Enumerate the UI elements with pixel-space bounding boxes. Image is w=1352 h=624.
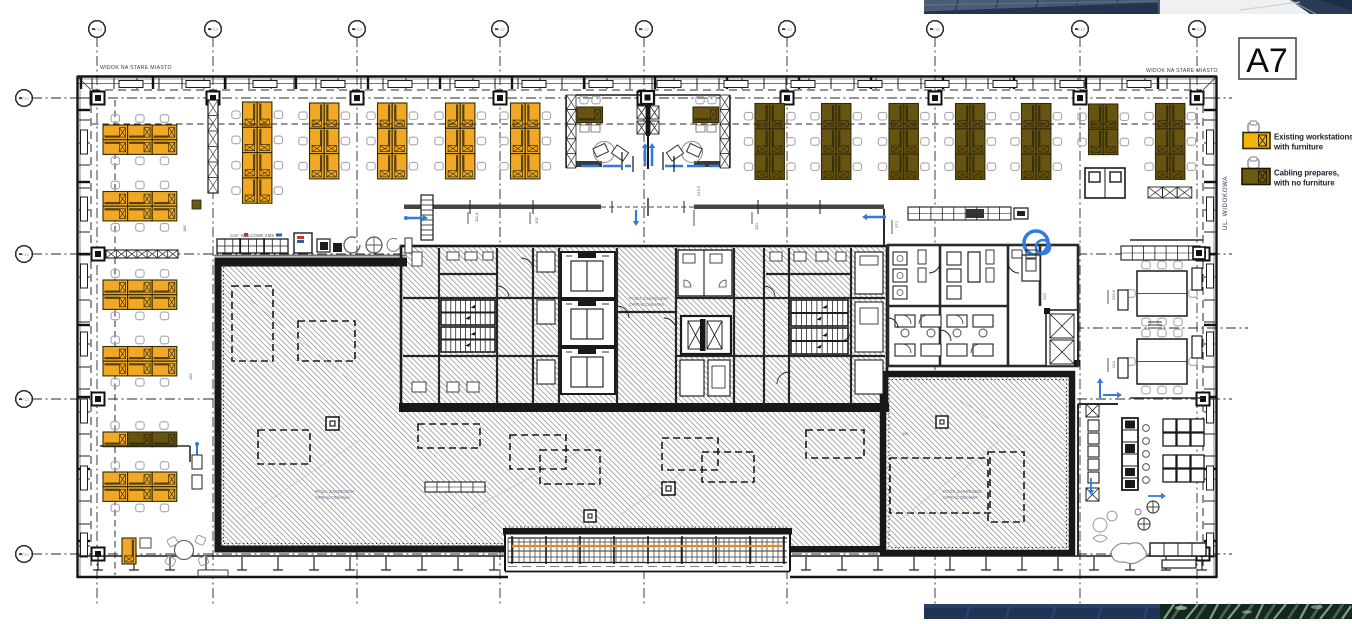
svg-text:Y13: Y13 <box>94 27 102 32</box>
svg-text:Y13: Y13 <box>21 96 29 101</box>
svg-text:213.3: 213.3 <box>696 185 701 196</box>
svg-text:Y13: Y13 <box>21 397 29 402</box>
svg-text:A7: A7 <box>1246 42 1288 80</box>
svg-text:Y13: Y13 <box>1194 27 1202 32</box>
svg-text:WIDOK NA STARE MIASTO: WIDOK NA STARE MIASTO <box>1146 68 1218 74</box>
svg-text:Y13: Y13 <box>21 552 29 557</box>
svg-text:Y13: Y13 <box>21 252 29 257</box>
svg-text:with furniture: with furniture <box>1273 143 1324 152</box>
svg-text:272: 272 <box>894 221 899 228</box>
svg-text:Y13: Y13 <box>210 27 218 32</box>
svg-text:Cabling prepares,: Cabling prepares, <box>1274 169 1339 178</box>
svg-text:OPRACOWANIA: OPRACOWANIA <box>943 495 978 500</box>
svg-text:Y13: Y13 <box>932 27 940 32</box>
svg-text:165: 165 <box>188 373 193 380</box>
svg-text:with no furniture: with no furniture <box>1273 179 1335 188</box>
svg-text:Existing workstations: Existing workstations <box>1274 133 1352 142</box>
svg-text:CAF. WELCOME SMS: CAF. WELCOME SMS <box>230 233 274 238</box>
svg-text:180: 180 <box>182 225 187 232</box>
svg-text:Y13: Y13 <box>497 27 505 32</box>
svg-text:UL. WIDOKOWA: UL. WIDOKOWA <box>1222 176 1229 230</box>
svg-text:220.5: 220.5 <box>1111 289 1116 300</box>
svg-text:POZA ZAKRESEM: POZA ZAKRESEM <box>315 489 354 494</box>
svg-text:POZA ZAKRESEM: POZA ZAKRESEM <box>943 489 982 494</box>
svg-text:Y13: Y13 <box>354 27 362 32</box>
svg-text:105: 105 <box>534 217 539 224</box>
svg-text:POZA ZAKRESEM: POZA ZAKRESEM <box>629 296 668 301</box>
svg-text:110: 110 <box>902 431 909 436</box>
svg-text:OPRACOWANIA: OPRACOWANIA <box>315 495 350 500</box>
svg-text:111.8: 111.8 <box>474 212 479 222</box>
svg-text:214: 214 <box>1111 361 1116 368</box>
svg-text:OPRACOWANIA: OPRACOWANIA <box>629 302 664 307</box>
svg-text:Y13: Y13 <box>1077 27 1085 32</box>
svg-text:Y13: Y13 <box>641 27 649 32</box>
svg-text:150: 150 <box>754 223 759 230</box>
svg-text:WIDOK NA STARE MIASTO: WIDOK NA STARE MIASTO <box>100 65 172 71</box>
svg-text:220: 220 <box>1042 293 1047 300</box>
svg-text:Y13: Y13 <box>784 27 792 32</box>
